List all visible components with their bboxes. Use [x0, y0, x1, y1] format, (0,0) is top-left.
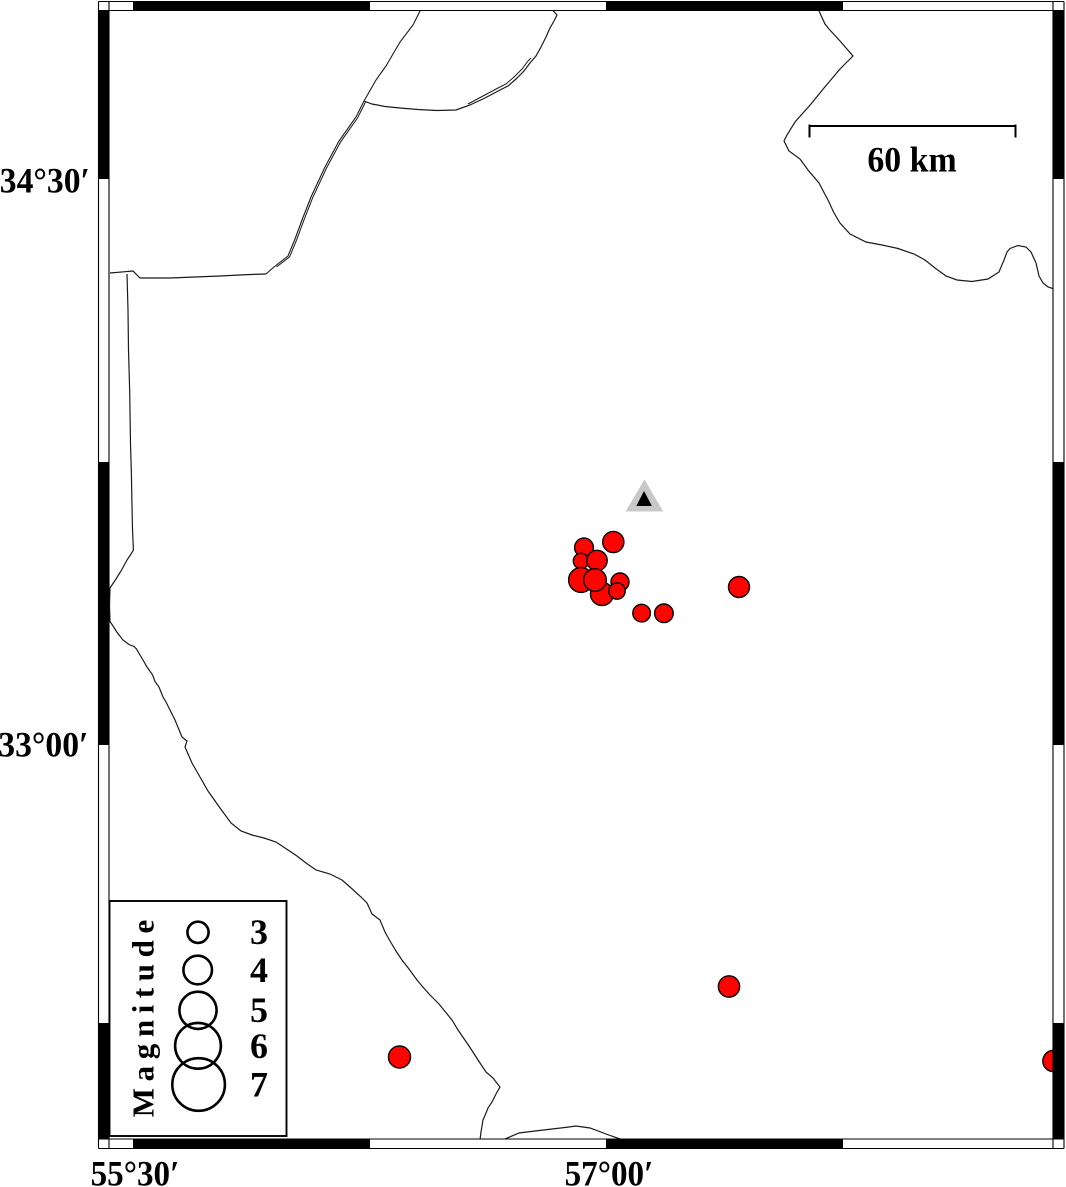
svg-text:6: 6 — [250, 1026, 268, 1066]
svg-text:4: 4 — [250, 950, 268, 990]
svg-text:3: 3 — [250, 912, 268, 952]
svg-text:7: 7 — [250, 1065, 268, 1105]
svg-text:33°00′: 33°00′ — [0, 724, 89, 764]
svg-text:34°30′: 34°30′ — [0, 160, 90, 200]
svg-text:57°00′: 57°00′ — [565, 1154, 654, 1187]
svg-text:Magnitude: Magnitude — [126, 913, 161, 1117]
svg-text:55°30′: 55°30′ — [91, 1154, 180, 1187]
svg-text:60 km: 60 km — [867, 140, 956, 180]
svg-text:5: 5 — [250, 990, 268, 1030]
